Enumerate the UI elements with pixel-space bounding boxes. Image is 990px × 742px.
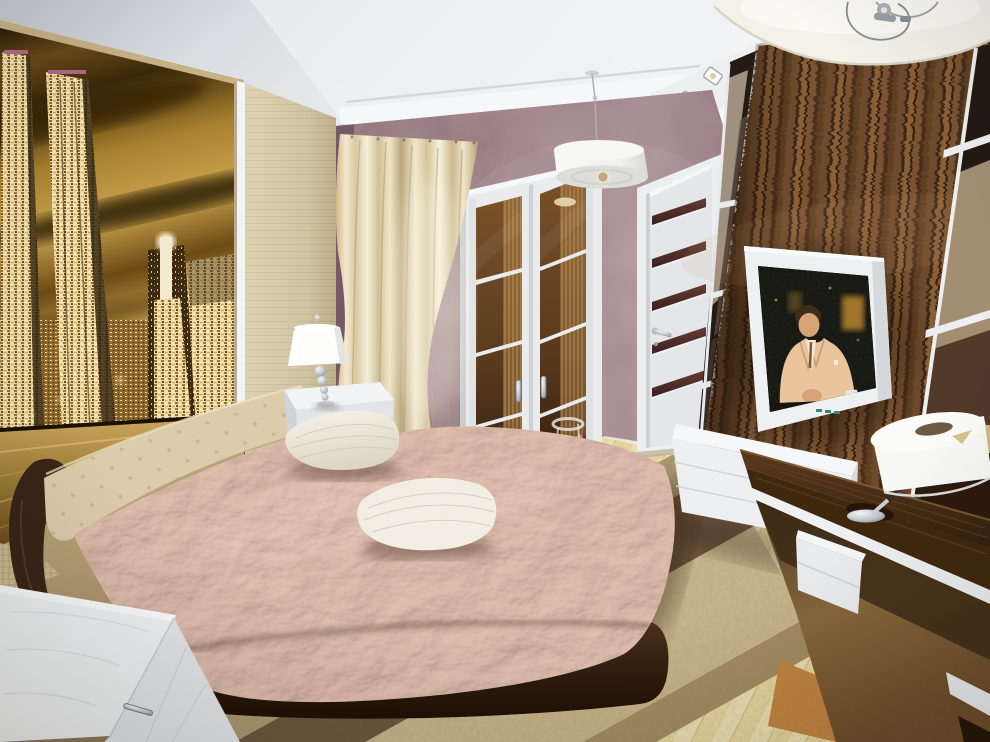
bedroom-scene — [0, 0, 990, 742]
bedroom-render — [0, 0, 990, 742]
vignette — [0, 0, 990, 742]
